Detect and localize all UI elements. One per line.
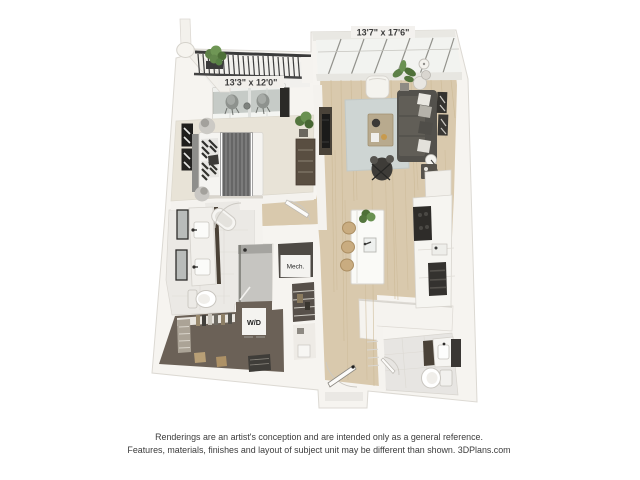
svg-text:Features, materials, finishes: Features, materials, finishes and layout…	[127, 445, 510, 455]
svg-text:Renderings are an artist's con: Renderings are an artist's conception an…	[155, 432, 483, 442]
svg-text:13'3" x 12'0": 13'3" x 12'0"	[225, 78, 278, 88]
svg-text:13'7" x 17'6": 13'7" x 17'6"	[357, 28, 410, 38]
svg-text:Mech.: Mech.	[287, 264, 305, 271]
svg-text:W/D: W/D	[247, 318, 261, 327]
